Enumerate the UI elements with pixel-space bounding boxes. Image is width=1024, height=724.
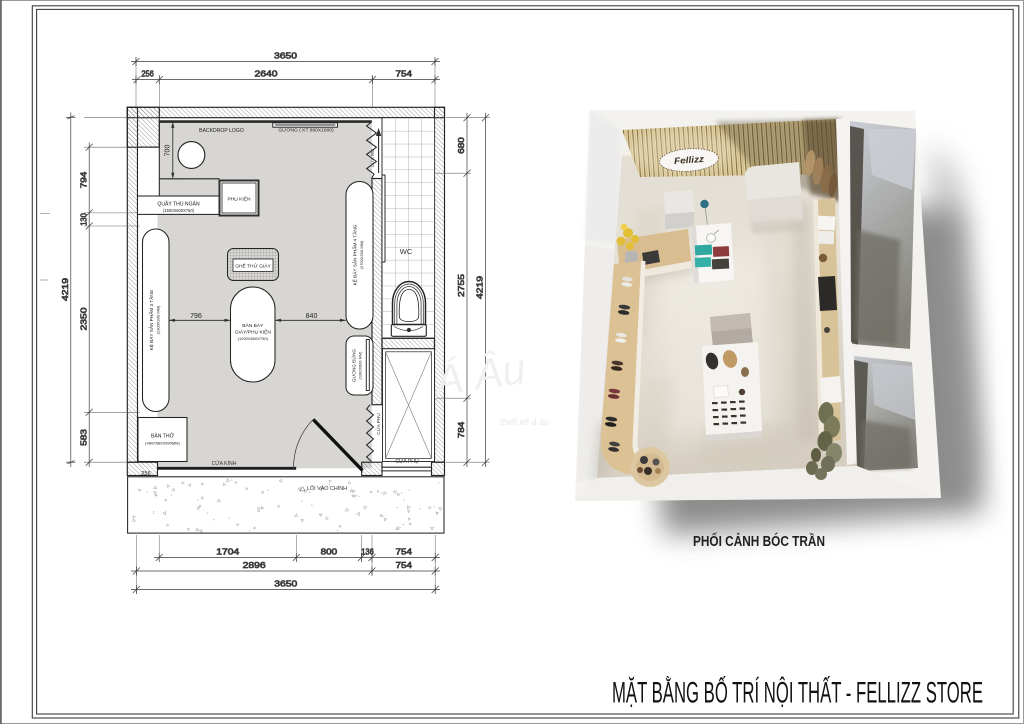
svg-text:2896: 2896 <box>243 561 267 570</box>
svg-text:796: 796 <box>190 313 202 320</box>
svg-text:130: 130 <box>80 213 89 226</box>
svg-text:GHẾ THỬ GIÀY: GHẾ THỬ GIÀY <box>235 263 271 270</box>
svg-text:4219: 4219 <box>61 277 70 301</box>
svg-text:3650: 3650 <box>274 580 298 589</box>
svg-text:700: 700 <box>165 145 172 157</box>
svg-text:BACKDROP LOGO: BACKDROP LOGO <box>199 128 244 134</box>
svg-text:2350: 2350 <box>80 307 89 331</box>
svg-text:CỬA PHỤ: CỬA PHỤ <box>375 413 381 435</box>
svg-text:KỆ BÀY SẢN PHẨM 4 TẦNG: KỆ BÀY SẢN PHẨM 4 TẦNG <box>351 224 358 285</box>
svg-text:800: 800 <box>321 548 338 557</box>
svg-text:MẶT BẰNG BỐ TRÍ NỘI THẤT - FEL: MẶT BẰNG BỐ TRÍ NỘI THẤT - FELLIZZ STORE <box>612 676 983 710</box>
svg-text:BÀN BÀY: BÀN BÀY <box>242 322 264 329</box>
svg-text:754: 754 <box>396 70 413 79</box>
svg-text:GƯƠNG ĐỨNG: GƯƠNG ĐỨNG <box>351 348 357 382</box>
svg-text:136: 136 <box>361 548 374 557</box>
svg-text:2640: 2640 <box>255 70 279 79</box>
svg-text:583: 583 <box>80 428 89 445</box>
svg-text:PHỐI CẢNH BÓC TRẦN: PHỐI CẢNH BÓC TRẦN <box>693 532 825 550</box>
svg-text:CỬA WC: CỬA WC <box>369 148 375 167</box>
svg-text:(1200X600X750): (1200X600X750) <box>238 336 269 341</box>
svg-text:754: 754 <box>396 561 413 570</box>
svg-text:3650: 3650 <box>274 52 298 61</box>
svg-text:1704: 1704 <box>216 548 240 557</box>
svg-text:(2700X330 MM): (2700X330 MM) <box>359 240 364 269</box>
svg-text:WC: WC <box>400 247 413 256</box>
svg-text:CỬA KÍNH: CỬA KÍNH <box>212 460 237 467</box>
svg-text:CỬA PHỤ: CỬA PHỤ <box>395 458 419 465</box>
svg-text:784: 784 <box>457 421 466 438</box>
svg-text:(2300X330 MM): (2300X330 MM) <box>156 305 161 334</box>
svg-text:QUẦY THU NGÂN: QUẦY THU NGÂN <box>157 201 200 208</box>
svg-text:(480X580X990MM): (480X580X990MM) <box>145 441 180 446</box>
svg-text:LỐI VÀO CHÍNH: LỐI VÀO CHÍNH <box>307 485 347 492</box>
svg-text:2755: 2755 <box>457 273 466 297</box>
svg-text:680: 680 <box>457 136 466 153</box>
svg-text:(1300X600 MM): (1300X600 MM) <box>358 351 363 380</box>
svg-text:840: 840 <box>306 313 318 320</box>
svg-text:4219: 4219 <box>476 275 485 299</box>
svg-text:BÀN THỜ: BÀN THỜ <box>151 433 175 440</box>
svg-text:256: 256 <box>141 70 154 79</box>
svg-text:794: 794 <box>80 171 89 188</box>
svg-text:GƯƠNG ( KT 800X1800): GƯƠNG ( KT 800X1800) <box>278 128 334 134</box>
svg-text:KỆ BÀY SẢN PHẨM 3 TẦNG: KỆ BÀY SẢN PHẨM 3 TẦNG <box>147 289 154 350</box>
svg-text:256: 256 <box>141 471 151 477</box>
svg-text:(1500X600X750): (1500X600X750) <box>163 208 195 213</box>
svg-text:thiết kế á âu: thiết kế á âu <box>500 417 549 427</box>
svg-text:754: 754 <box>396 548 413 557</box>
svg-text:Fellizz: Fellizz <box>674 154 705 166</box>
